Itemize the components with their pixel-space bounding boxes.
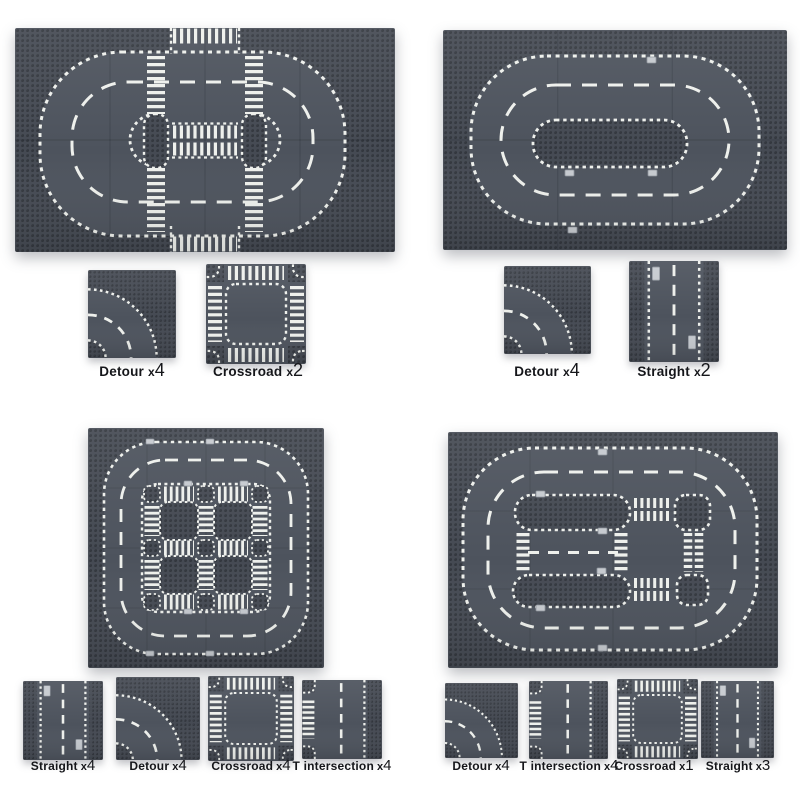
piece-times: x bbox=[286, 365, 293, 379]
piece-label: T intersection x 4 bbox=[282, 759, 402, 773]
piece-name: Detour bbox=[129, 759, 169, 773]
road-baseplate-product-collage: Detour x 4 Crossroad x 2 Detour x 4 Stra… bbox=[0, 0, 800, 800]
assembled-layout-oval-ring bbox=[443, 30, 787, 250]
piece-count: 4 bbox=[383, 759, 391, 772]
t-intersection-plate-icon bbox=[302, 680, 382, 759]
piece-name: Detour bbox=[99, 364, 144, 379]
piece-count: 4 bbox=[87, 759, 95, 772]
assembled-layout-oval-crossroads bbox=[15, 28, 395, 252]
piece-times: x bbox=[148, 365, 155, 379]
crossroad-plate-icon bbox=[617, 679, 698, 759]
piece-name: Detour bbox=[452, 759, 492, 773]
piece-name: Straight bbox=[637, 364, 690, 379]
straight-plate-icon bbox=[629, 261, 719, 362]
detour-plate-icon bbox=[445, 683, 518, 758]
piece-count: 4 bbox=[155, 364, 165, 377]
straight-plate-icon bbox=[701, 681, 774, 758]
piece-name: T intersection bbox=[520, 759, 601, 773]
t-intersection-plate-icon bbox=[529, 681, 608, 759]
piece-label: Straight x 3 bbox=[688, 759, 788, 773]
piece-name: Straight bbox=[31, 759, 78, 773]
piece-times: x bbox=[563, 365, 570, 379]
piece-label: Straight x 4 bbox=[13, 759, 113, 773]
piece-count: 4 bbox=[178, 759, 186, 772]
piece-count: 4 bbox=[570, 364, 580, 377]
piece-name: Crossroad bbox=[211, 759, 273, 773]
assembled-layout-city-grid bbox=[88, 428, 324, 668]
detour-plate-icon bbox=[504, 266, 591, 354]
detour-plate-icon bbox=[116, 677, 200, 760]
detour-plate-icon bbox=[88, 270, 176, 358]
piece-count: 2 bbox=[701, 364, 711, 377]
piece-name: Crossroad bbox=[614, 759, 676, 773]
piece-name: T intersection bbox=[293, 759, 374, 773]
piece-count: 3 bbox=[762, 759, 770, 772]
piece-name: Detour bbox=[514, 364, 559, 379]
straight-plate-icon bbox=[23, 681, 103, 760]
piece-label: Detour x 4 bbox=[108, 759, 208, 773]
piece-times: x bbox=[694, 365, 701, 379]
crossroad-plate-icon bbox=[206, 264, 306, 364]
piece-label: Crossroad x 2 bbox=[178, 364, 338, 379]
piece-count: 2 bbox=[293, 364, 303, 377]
piece-name: Crossroad bbox=[213, 364, 282, 379]
piece-label: Straight x 2 bbox=[594, 364, 754, 379]
piece-name: Straight bbox=[706, 759, 753, 773]
crossroad-plate-icon bbox=[208, 676, 294, 761]
assembled-layout-ring-with-blocks bbox=[448, 432, 778, 668]
